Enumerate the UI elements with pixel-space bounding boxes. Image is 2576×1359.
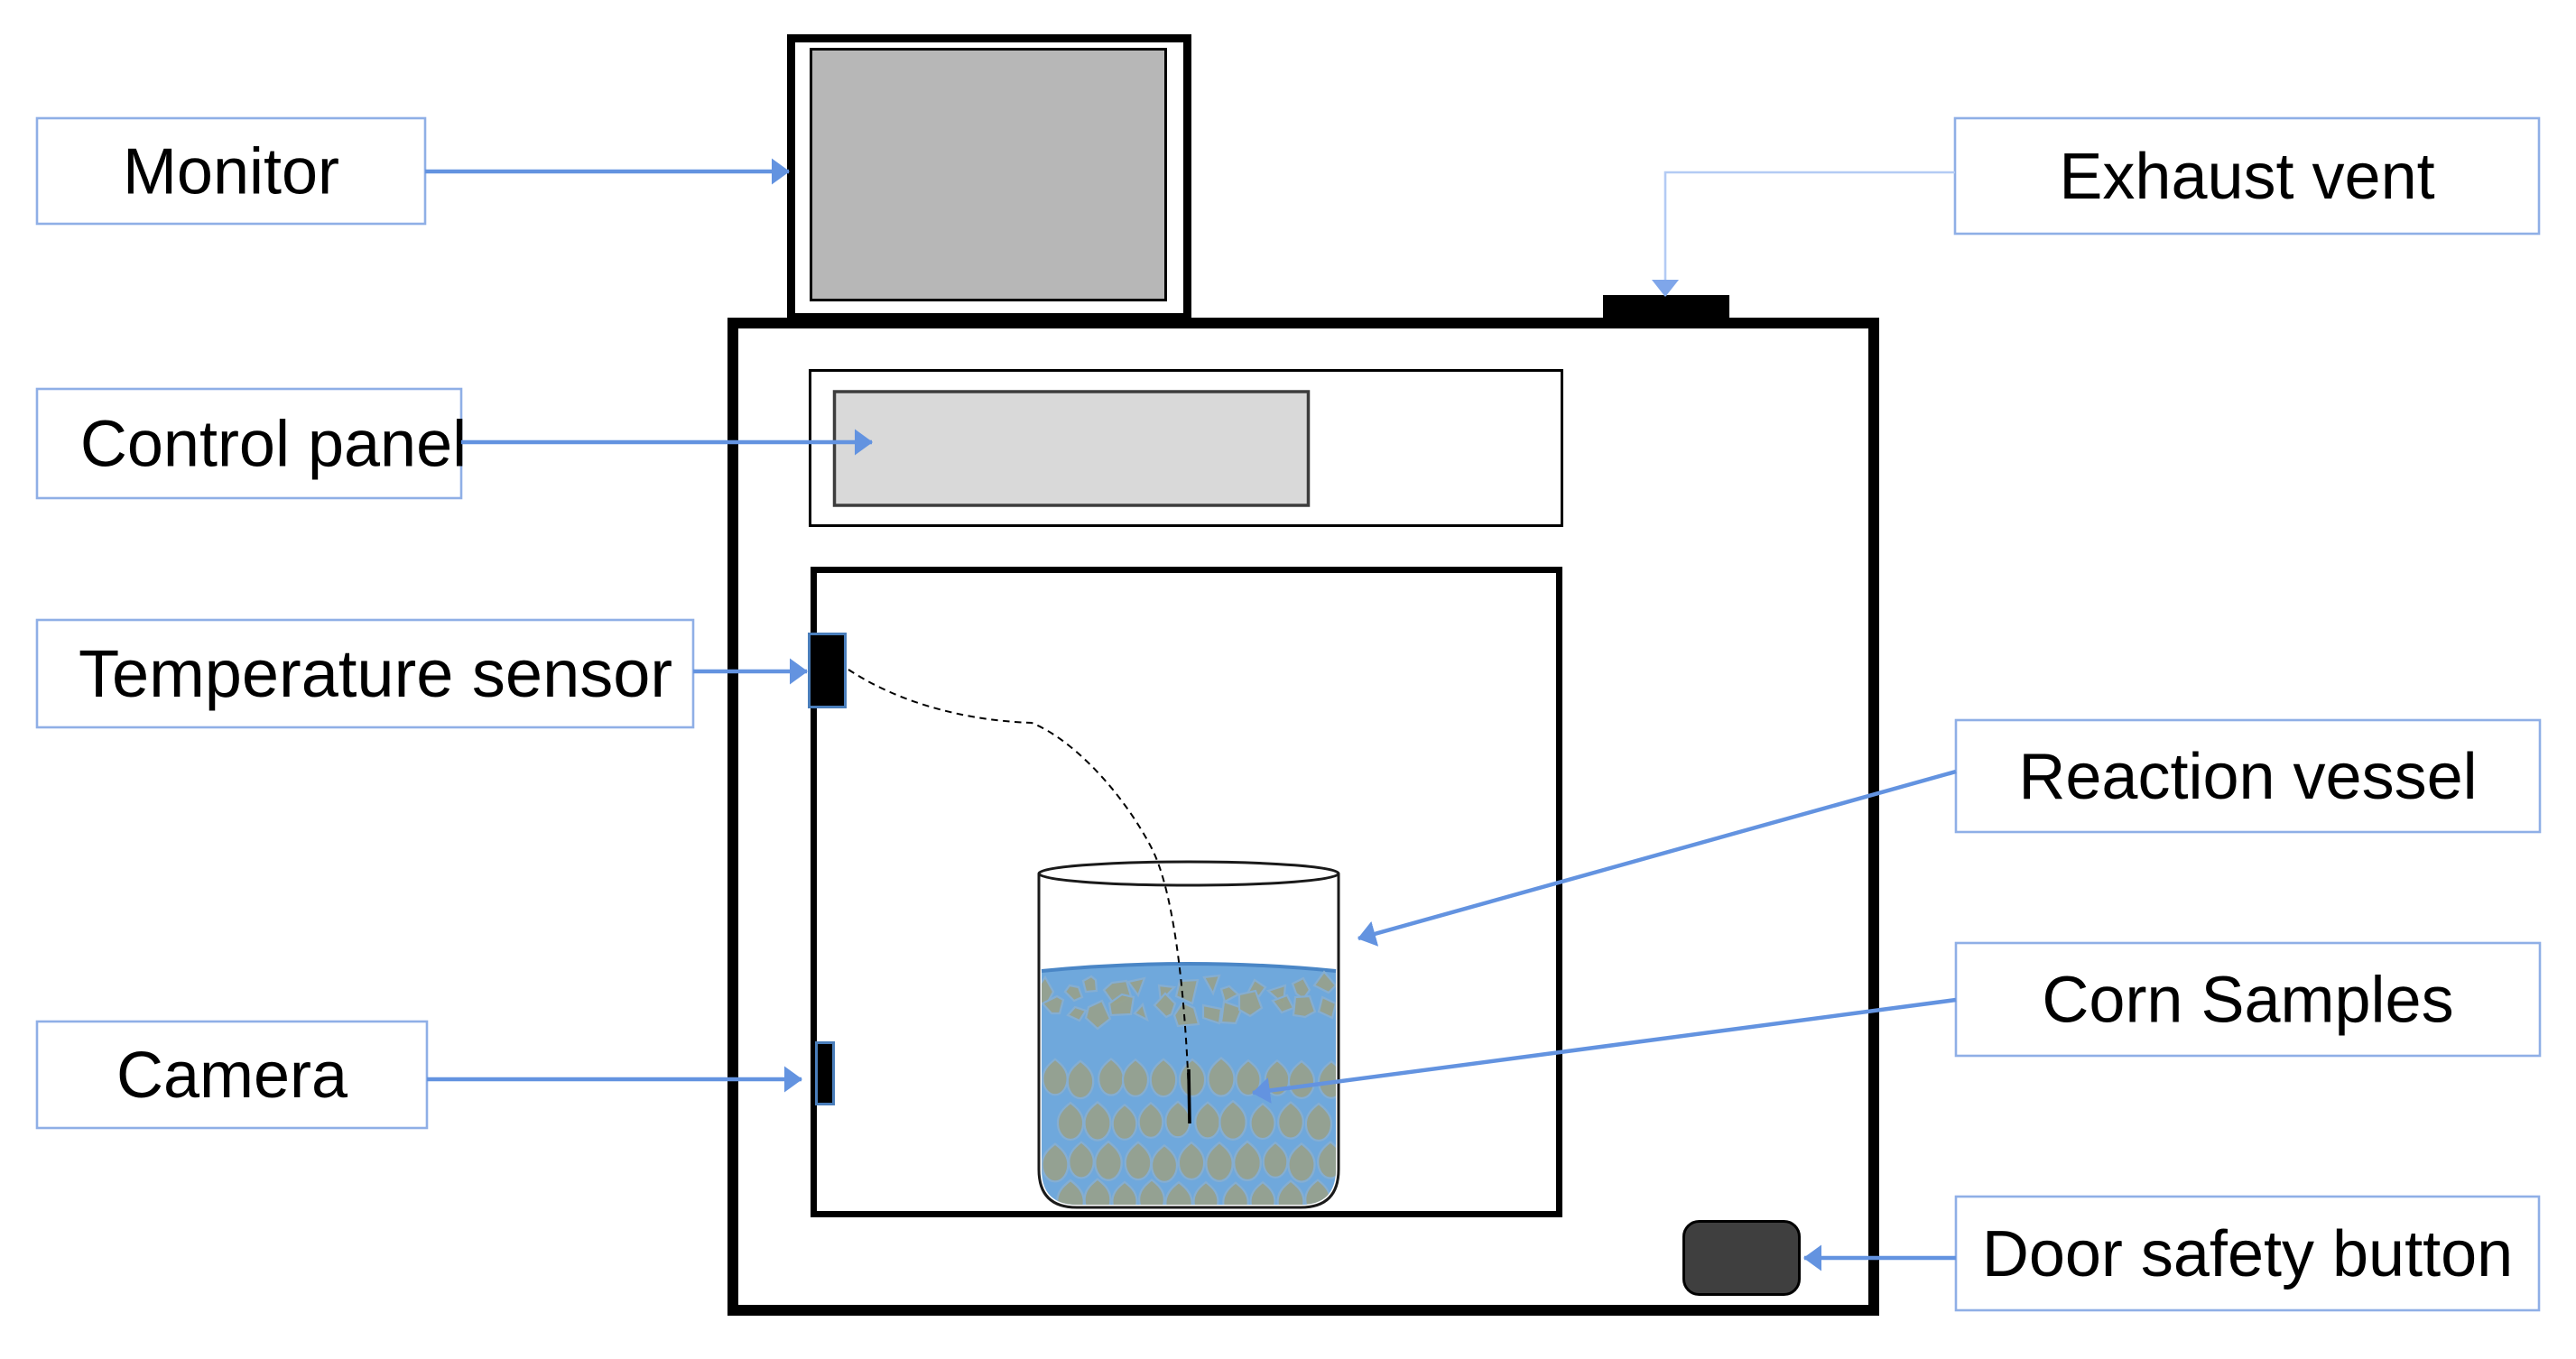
svg-text:Exhaust vent: Exhaust vent <box>2059 141 2434 213</box>
svg-text:Monitor: Monitor <box>123 136 339 208</box>
svg-text:Temperature sensor: Temperature sensor <box>79 636 672 711</box>
svg-text:Camera: Camera <box>116 1040 348 1112</box>
svg-text:Door safety button: Door safety button <box>1982 1218 2513 1290</box>
svg-text:Corn Samples: Corn Samples <box>2042 965 2453 1037</box>
svg-text:Reaction vessel: Reaction vessel <box>2018 741 2477 813</box>
svg-text:Control panel: Control panel <box>80 409 467 481</box>
